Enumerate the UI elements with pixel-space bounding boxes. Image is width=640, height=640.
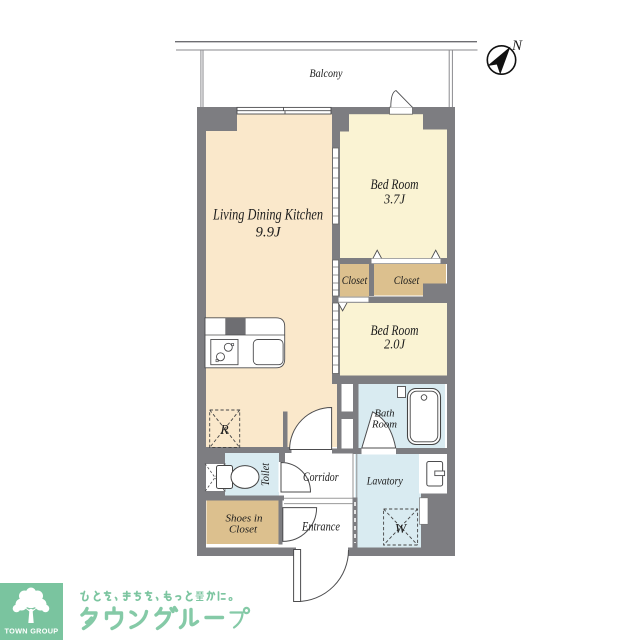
- svg-text:2.0J: 2.0J: [384, 338, 406, 353]
- svg-text:TOWN GROUP: TOWN GROUP: [5, 627, 59, 636]
- svg-text:Balcony: Balcony: [310, 68, 344, 80]
- svg-text:Closet: Closet: [394, 273, 420, 287]
- svg-text:Closet: Closet: [342, 273, 368, 287]
- svg-text:Entrance: Entrance: [301, 520, 340, 534]
- svg-text:Toilet: Toilet: [260, 462, 272, 486]
- svg-text:Bed Room: Bed Room: [371, 177, 419, 193]
- svg-text:Closet: Closet: [229, 524, 258, 536]
- svg-text:Living Dining Kitchen: Living Dining Kitchen: [212, 207, 323, 224]
- svg-text:Corridor: Corridor: [303, 470, 339, 484]
- svg-text:9.9J: 9.9J: [256, 225, 282, 241]
- svg-text:Room: Room: [371, 420, 397, 431]
- svg-text:Lavatory: Lavatory: [366, 474, 403, 488]
- svg-text:W: W: [395, 521, 408, 536]
- svg-text:N: N: [511, 38, 523, 54]
- svg-text:3.7J: 3.7J: [383, 193, 406, 208]
- svg-text:Bath: Bath: [375, 409, 395, 420]
- svg-text:R: R: [219, 422, 229, 437]
